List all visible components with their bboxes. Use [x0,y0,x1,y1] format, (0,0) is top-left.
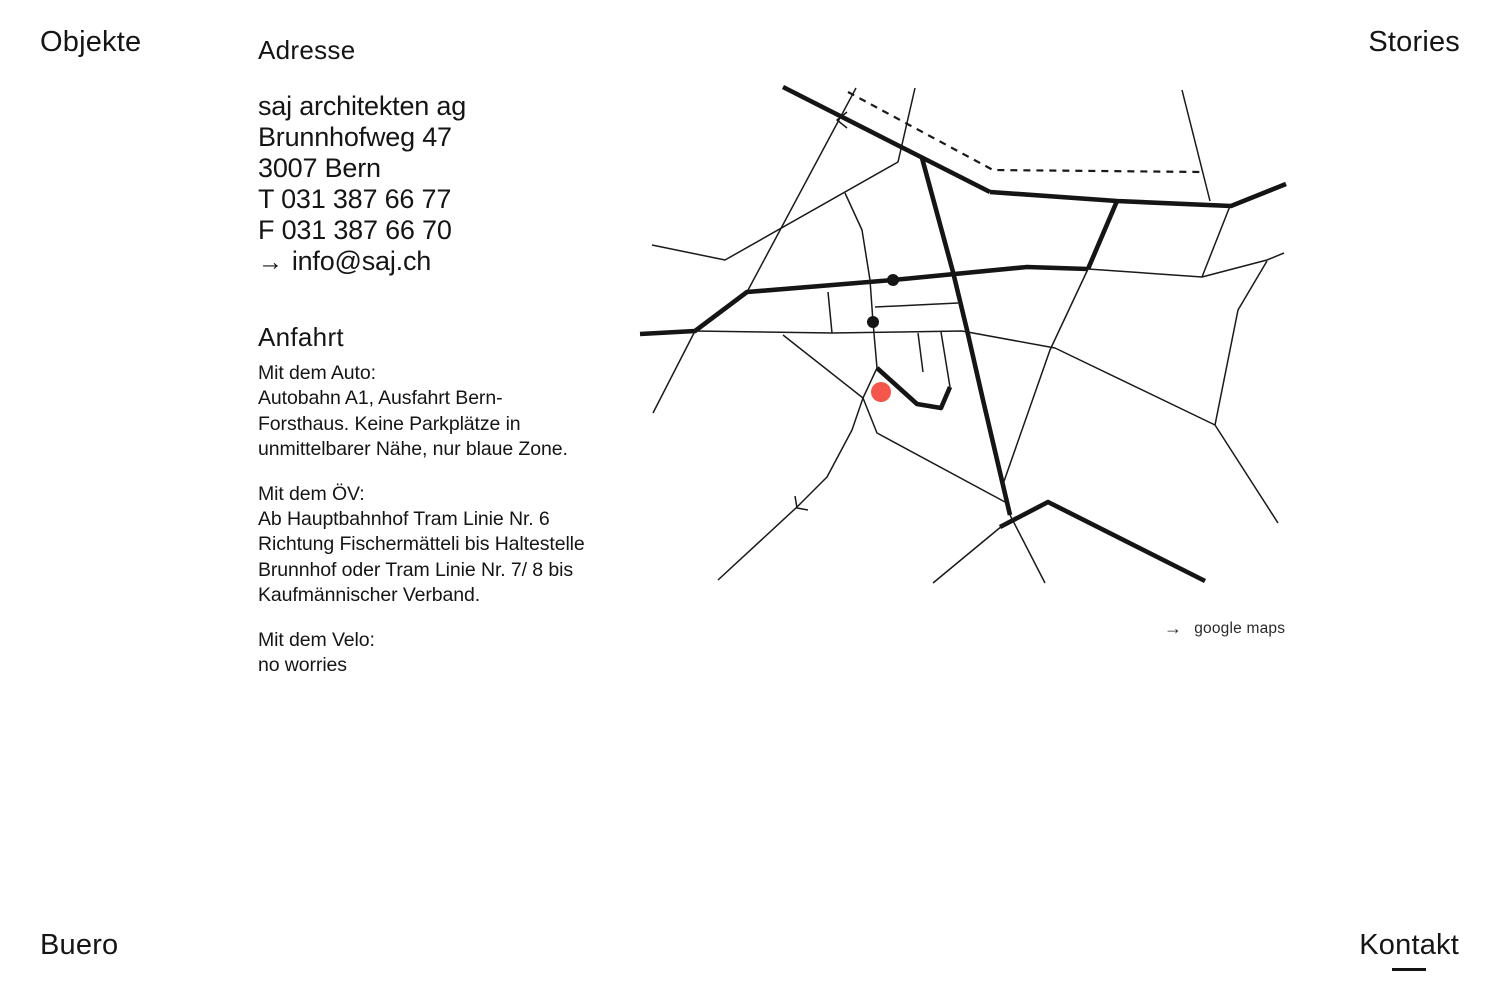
map-road-thin [653,331,695,413]
map-road-thin [695,331,1278,523]
map-road-thick [1000,502,1205,581]
map-road-thin [718,368,877,580]
tram-stop-dot-1 [887,274,899,286]
tram-stop-dot-2 [867,316,879,328]
map-road-thin [1182,90,1210,201]
map-road-thick [783,87,990,192]
map-road-thick [990,184,1286,206]
map-road-dashed [848,92,1203,172]
street-map [0,0,1500,990]
right-arrow-icon: → [1164,618,1182,639]
map-road-thin [918,333,923,372]
map-road-thin [1202,206,1230,277]
map-road-thick [640,267,1088,334]
map-road-thin [1088,253,1284,277]
google-maps-label: google maps [1194,620,1285,638]
map-road-thick [922,158,1010,515]
map-road-thin [1215,261,1267,425]
map-road-thin [933,521,1008,583]
map-road-thin [1002,269,1088,487]
google-maps-link[interactable]: → google maps [1164,618,1285,639]
map-road-thin [652,88,915,260]
office-location-marker [871,382,891,402]
map-road-thin [1010,515,1045,583]
map-road-thick [1088,201,1117,269]
map-road-thin [941,332,950,387]
map-road-thin [875,303,958,307]
map-road-thin [828,292,832,333]
